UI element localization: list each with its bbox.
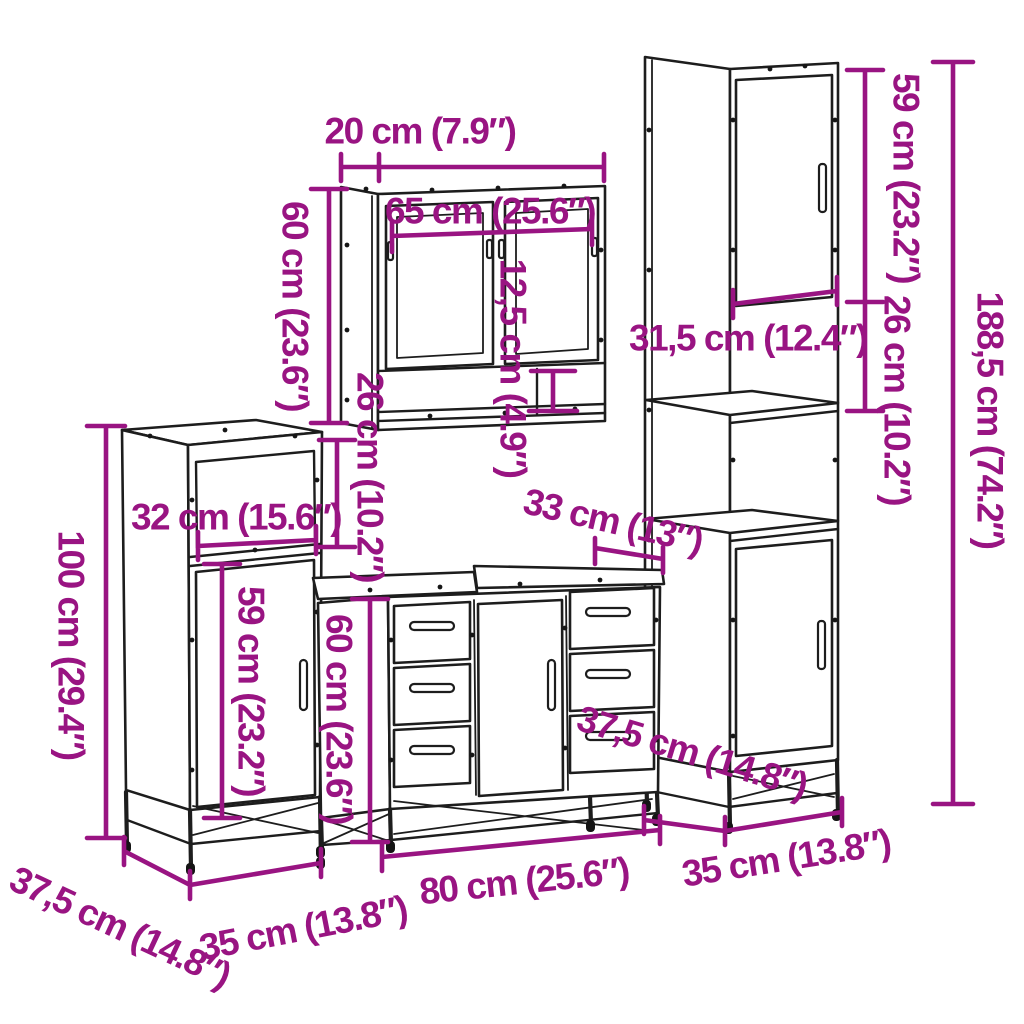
dim-side-door-label: 59 cm (23.2″): [231, 586, 272, 796]
dim-tall-width-label: 35 cm (13.8″): [679, 821, 893, 894]
dim-mirror-depth-line: [341, 154, 604, 181]
mirror-door-handle-left-inner: [487, 240, 492, 258]
sink-cabinet-top-right-board: [474, 566, 664, 588]
dim-side-height-label: 100 cm (29.4″): [51, 530, 92, 759]
dim-mirror-height-label: 60 cm (23.6″): [275, 201, 316, 411]
dim-side-compartment-label: 26 cm (10.2″): [350, 372, 391, 582]
tall-cabinet-top-door: [736, 75, 832, 306]
dim-side-inner-width-label: 32 cm (15.6″): [131, 497, 341, 538]
dim-mirror-shelf-label: 12,5 cm (4.9″): [493, 259, 534, 478]
dim-tall-height-line: [933, 62, 973, 804]
tall-cabinet-top-door-handle: [819, 164, 826, 212]
dim-side-width-line: [190, 849, 321, 885]
dim-sink-height-label: 60 cm (23.6″): [319, 614, 360, 824]
side-cabinet-door-handle: [300, 660, 307, 710]
dim-side-width-label: 35 cm (13.8″): [196, 888, 410, 968]
dim-tall-door-line: [847, 70, 883, 302]
tall-cabinet-drawing: [642, 57, 841, 834]
dimension-annotations: 20 cm (7.9″) 65 cm (25.6″) 60 cm (23.6″)…: [4, 62, 1011, 996]
sink-cabinet-door-handle: [548, 660, 555, 710]
dim-tall-height-label: 188,5 cm (74.2″): [970, 291, 1011, 548]
sink-cabinet-left-drawers: [394, 602, 470, 787]
dim-sink-width-label: 80 cm (25.6″): [417, 850, 630, 913]
side-cabinet-side-panel: [122, 430, 190, 810]
side-cabinet-base-bars: [127, 820, 321, 844]
sink-cabinet-door: [478, 600, 563, 796]
mirror-door-handle-right-inner: [499, 240, 504, 258]
dim-tall-shelf-label: 26 cm (10.2″): [877, 295, 918, 505]
tall-cabinet-bottom-door-handle: [818, 621, 825, 669]
diagram-canvas: 20 cm (7.9″) 65 cm (25.6″) 60 cm (23.6″)…: [0, 0, 1024, 1024]
dim-mirror-depth-label: 20 cm (7.9″): [325, 111, 516, 152]
bathroom-furniture-dimension-diagram: 20 cm (7.9″) 65 cm (25.6″) 60 cm (23.6″)…: [0, 0, 1024, 1024]
dim-tall-width-line: [725, 798, 842, 831]
dim-side-height-line: [87, 426, 125, 838]
dim-side-depth-line: [124, 837, 190, 899]
dim-tall-door-label: 59 cm (23.2″): [886, 73, 927, 283]
dim-tall-inner-width-label: 31,5 cm (12.4″): [629, 318, 867, 359]
dim-mirror-width-label: 65 cm (25.6″): [385, 191, 595, 232]
